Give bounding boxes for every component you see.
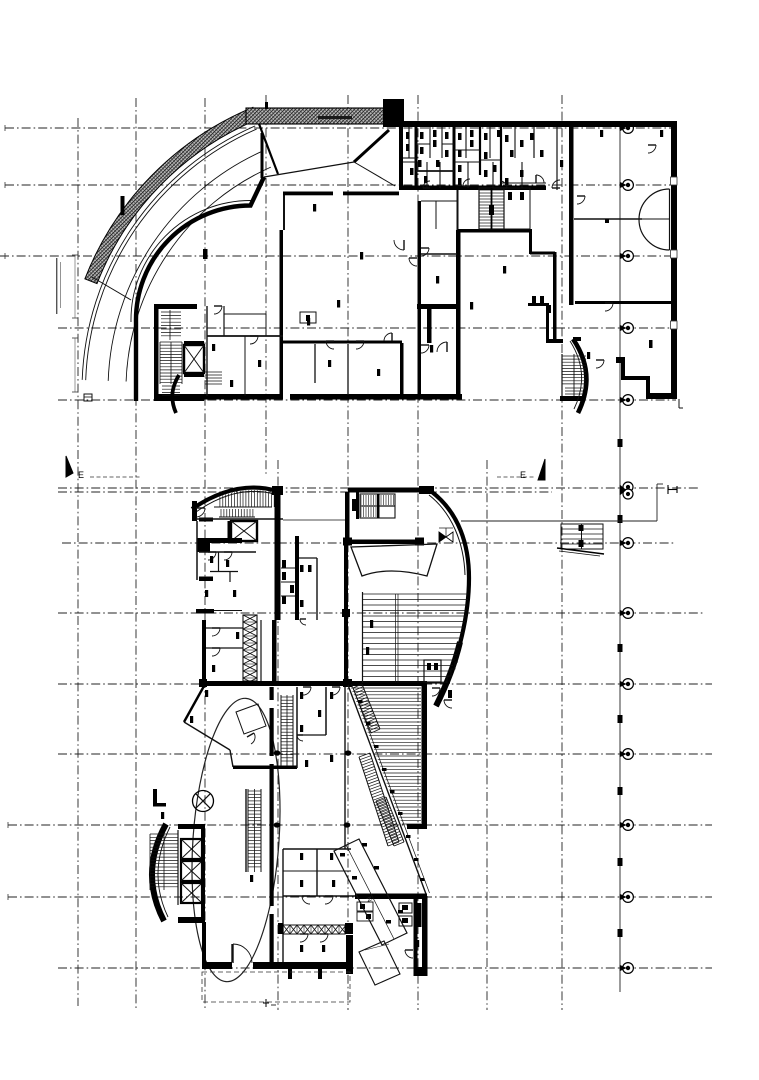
svg-text:E: E [520, 470, 526, 480]
svg-text:E: E [78, 470, 84, 480]
